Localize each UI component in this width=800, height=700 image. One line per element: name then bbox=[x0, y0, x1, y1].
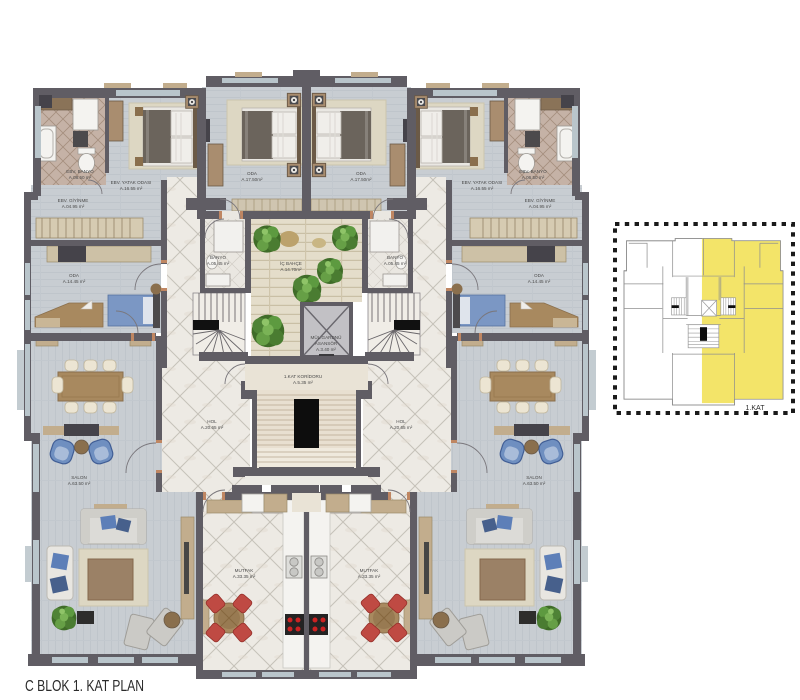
svg-text:ODA: ODA bbox=[69, 273, 80, 278]
svg-text:ODA: ODA bbox=[247, 171, 258, 176]
svg-text:A.33.35 m²: A.33.35 m² bbox=[233, 574, 256, 579]
svg-text:MUTFAK: MUTFAK bbox=[235, 568, 255, 573]
svg-text:A.05.45 m²: A.05.45 m² bbox=[207, 261, 230, 266]
svg-text:A.14.70m²: A.14.70m² bbox=[280, 267, 302, 272]
svg-text:EBV. YATAK ODASI: EBV. YATAK ODASI bbox=[111, 180, 152, 185]
svg-text:EBV. YATAK ODASI: EBV. YATAK ODASI bbox=[462, 180, 503, 185]
svg-text:A.16.55 m²: A.16.55 m² bbox=[471, 186, 494, 191]
svg-text:A.33.35 m²: A.33.35 m² bbox=[358, 574, 381, 579]
svg-text:A.14.45 m²: A.14.45 m² bbox=[63, 279, 86, 284]
svg-text:ODA: ODA bbox=[534, 273, 545, 278]
svg-text:1.KAT KORİDORU: 1.KAT KORİDORU bbox=[284, 373, 322, 379]
svg-text:A.14.45 m²: A.14.45 m² bbox=[528, 279, 551, 284]
svg-text:ASANSÖR: ASANSÖR bbox=[315, 340, 338, 346]
svg-text:MÜL.GARDNÜ: MÜL.GARDNÜ bbox=[311, 334, 342, 340]
svg-text:MUTFAK: MUTFAK bbox=[360, 568, 380, 573]
svg-text:A.20.65 m²: A.20.65 m² bbox=[390, 425, 413, 430]
svg-text:C BLOK 1. KAT PLAN: C BLOK 1. KAT PLAN bbox=[25, 678, 144, 695]
svg-text:HOL: HOL bbox=[396, 419, 406, 424]
svg-text:SALON: SALON bbox=[526, 475, 542, 480]
svg-text:EBV. GİYİNME: EBV. GİYİNME bbox=[525, 197, 556, 203]
svg-text:SALON: SALON bbox=[71, 475, 87, 480]
svg-text:A.63.50 m²: A.63.50 m² bbox=[523, 481, 546, 486]
svg-text:A.06.50 m²: A.06.50 m² bbox=[522, 175, 545, 180]
svg-text:EBV. BANYO: EBV. BANYO bbox=[66, 169, 94, 174]
svg-text:A.17.50m²: A.17.50m² bbox=[241, 177, 263, 182]
svg-text:A.63.50 m²: A.63.50 m² bbox=[68, 481, 91, 486]
svg-text:A.16.55 m²: A.16.55 m² bbox=[120, 186, 143, 191]
svg-text:EBV. BANYO: EBV. BANYO bbox=[519, 169, 547, 174]
svg-text:A.5.35 m²: A.5.35 m² bbox=[293, 380, 313, 385]
svg-text:İÇ BAHÇE: İÇ BAHÇE bbox=[280, 260, 302, 266]
svg-text:A.05.45 m²: A.05.45 m² bbox=[384, 261, 407, 266]
svg-text:1.KAT: 1.KAT bbox=[746, 405, 766, 412]
svg-text:BANYO: BANYO bbox=[210, 255, 227, 260]
svg-text:A.04.95 m²: A.04.95 m² bbox=[62, 204, 85, 209]
svg-text:EBV. GİYİNME: EBV. GİYİNME bbox=[58, 197, 89, 203]
svg-text:ODA: ODA bbox=[356, 171, 367, 176]
svg-text:A.08.50 m²: A.08.50 m² bbox=[69, 175, 92, 180]
svg-text:BANYO: BANYO bbox=[387, 255, 404, 260]
svg-text:A.04.95 m²: A.04.95 m² bbox=[529, 204, 552, 209]
svg-text:HOL: HOL bbox=[207, 419, 217, 424]
svg-text:A.17.50m²: A.17.50m² bbox=[350, 177, 372, 182]
svg-text:A.20.65 m²: A.20.65 m² bbox=[201, 425, 224, 430]
svg-text:A.3.40 m²: A.3.40 m² bbox=[316, 347, 336, 352]
